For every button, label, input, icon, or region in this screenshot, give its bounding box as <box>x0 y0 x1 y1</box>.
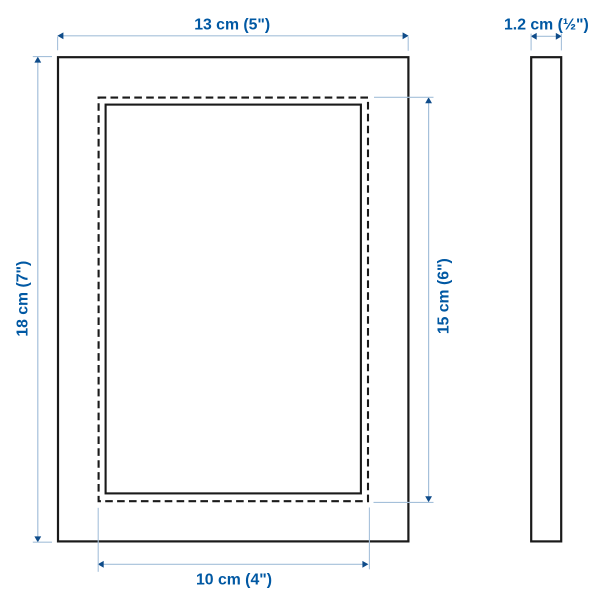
svg-text:10 cm (4"): 10 cm (4") <box>196 572 272 589</box>
svg-text:18 cm (7"): 18 cm (7") <box>15 261 32 337</box>
svg-text:15 cm (6"): 15 cm (6") <box>436 258 453 334</box>
svg-text:1.2 cm (½"): 1.2 cm (½") <box>504 17 589 34</box>
svg-text:13 cm (5"): 13 cm (5") <box>194 17 270 34</box>
